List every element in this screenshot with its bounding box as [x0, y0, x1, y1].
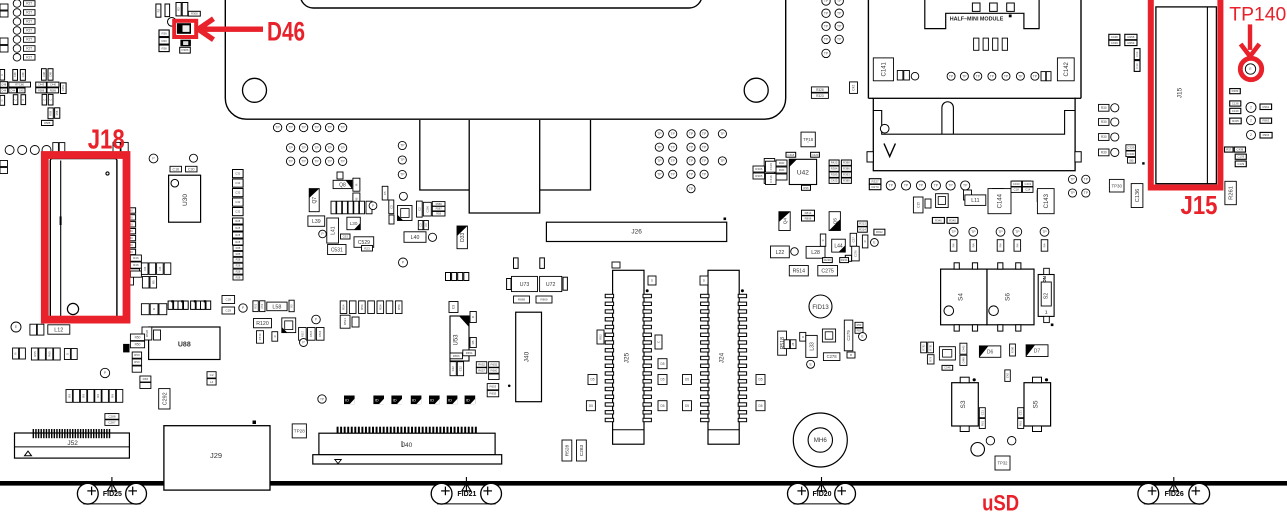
svg-text:C279: C279 [846, 330, 851, 341]
svg-text:TP: TP [340, 146, 345, 150]
svg-text:R389: R389 [843, 179, 850, 183]
svg-text:R270: R270 [872, 185, 880, 189]
svg-text:C286: C286 [425, 205, 429, 212]
svg-text:R28: R28 [235, 226, 240, 230]
svg-text:C32: C32 [459, 366, 463, 372]
svg-text:TP: TP [671, 159, 676, 163]
svg-text:1: 1 [1045, 310, 1048, 316]
svg-text:C: C [21, 99, 25, 101]
svg-text:Q4: Q4 [782, 218, 788, 225]
svg-text:J15: J15 [1181, 190, 1218, 220]
svg-text:R459: R459 [1127, 41, 1134, 45]
svg-text:C425: C425 [831, 179, 838, 183]
svg-text:TP: TP [976, 74, 981, 78]
svg-text:R813: R813 [805, 211, 812, 215]
svg-text:R234: R234 [841, 258, 848, 262]
svg-text:R79: R79 [929, 356, 933, 361]
svg-text:R963: R963 [1262, 119, 1269, 123]
svg-text:L44: L44 [834, 243, 843, 249]
svg-text:R657: R657 [478, 369, 485, 373]
svg-text:R28: R28 [236, 264, 241, 268]
svg-text:J26: J26 [631, 229, 642, 236]
svg-text:R120: R120 [256, 321, 269, 327]
svg-text:C292: C292 [162, 392, 168, 405]
svg-text:TP: TP [702, 159, 707, 163]
svg-text:TP: TP [1033, 74, 1038, 78]
svg-text:TP: TP [1004, 74, 1009, 78]
svg-text:R27: R27 [26, 2, 32, 6]
svg-text:D5: D5 [758, 404, 762, 408]
svg-text:R30: R30 [1101, 120, 1107, 124]
svg-text:Q8: Q8 [339, 182, 346, 188]
svg-text:D46: D46 [267, 17, 305, 47]
svg-text:R50: R50 [135, 343, 141, 347]
svg-text:R345: R345 [949, 218, 956, 222]
svg-text:28: 28 [791, 342, 795, 346]
svg-text:R2: R2 [156, 8, 160, 12]
svg-text:C: C [42, 99, 46, 101]
svg-text:TP: TP [824, 0, 829, 3]
svg-text:R5: R5 [151, 280, 155, 284]
svg-text:R27: R27 [26, 56, 32, 60]
svg-text:TP: TP [689, 159, 694, 163]
svg-text:D5: D5 [660, 404, 664, 408]
svg-text:D6: D6 [987, 349, 994, 355]
svg-text:R50: R50 [134, 360, 140, 364]
svg-text:C531: C531 [331, 247, 343, 253]
svg-text:D5: D5 [660, 362, 664, 366]
svg-text:R4: R4 [158, 266, 162, 270]
svg-text:R46: R46 [133, 256, 139, 260]
svg-text:J24: J24 [719, 352, 726, 363]
svg-text:R28: R28 [236, 270, 241, 274]
svg-text:TP: TP [327, 126, 332, 130]
svg-text:TP: TP [1084, 178, 1089, 182]
svg-text:TP: TP [1015, 230, 1020, 234]
svg-text:TP: TP [837, 11, 842, 15]
svg-text:R28: R28 [236, 258, 241, 262]
svg-text:C453: C453 [61, 85, 65, 92]
svg-text:TP: TP [702, 132, 707, 136]
svg-text:R962: R962 [1262, 105, 1269, 109]
svg-text:R660: R660 [491, 369, 498, 373]
svg-text:ID: ID [466, 397, 470, 402]
svg-text:S2: S2 [1044, 293, 1050, 300]
svg-text:R388: R388 [843, 161, 850, 165]
svg-text:C48: C48 [13, 72, 17, 77]
svg-text:R306: R306 [755, 167, 763, 171]
svg-text:R54: R54 [378, 304, 382, 310]
svg-text:TP: TP [934, 184, 939, 188]
svg-text:TP: TP [689, 173, 694, 177]
svg-text:R27: R27 [26, 29, 32, 33]
svg-text:R65: R65 [48, 351, 52, 357]
svg-text:TP: TP [962, 74, 967, 78]
svg-text:C418: C418 [788, 153, 795, 157]
svg-text:TP: TP [720, 159, 725, 163]
svg-text:TP: TP [824, 24, 829, 28]
svg-text:R: R [863, 240, 867, 242]
svg-text:C32: C32 [235, 210, 241, 214]
svg-text:R655: R655 [491, 363, 498, 367]
svg-text:R30: R30 [1101, 151, 1107, 155]
svg-text:C329: C329 [1127, 146, 1135, 150]
svg-text:L11: L11 [971, 198, 979, 204]
svg-text:R9: R9 [96, 394, 100, 398]
svg-text:TP: TP [720, 132, 725, 136]
svg-text:R4: R4 [971, 243, 975, 247]
svg-text:2: 2 [1250, 133, 1252, 137]
svg-text:FID26: FID26 [1165, 491, 1184, 498]
svg-text:C278: C278 [827, 354, 838, 359]
svg-text:TP: TP [971, 230, 976, 234]
svg-text:TP: TP [657, 159, 662, 163]
svg-text:TP: TP [1084, 191, 1089, 195]
svg-text:R516: R516 [318, 330, 322, 337]
svg-text:R517: R517 [300, 330, 304, 337]
svg-text:TP: TP [824, 38, 829, 42]
svg-text:C430: C430 [1013, 182, 1020, 186]
svg-text:U88: U88 [178, 342, 191, 349]
svg-text:R534: R534 [343, 318, 347, 326]
svg-text:L33: L33 [809, 342, 815, 351]
svg-text:R812: R812 [876, 230, 883, 234]
svg-text:C30: C30 [188, 167, 195, 171]
svg-text:R37: R37 [1226, 148, 1232, 152]
svg-text:TP: TP [837, 0, 842, 3]
svg-text:FID21: FID21 [457, 491, 476, 498]
svg-text:U73: U73 [520, 282, 530, 288]
svg-text:TP30: TP30 [1111, 183, 1122, 188]
svg-text:R389: R389 [1232, 89, 1239, 93]
svg-text:C: C [0, 74, 4, 76]
svg-text:C418: C418 [769, 163, 773, 171]
svg-text:U30: U30 [182, 194, 189, 206]
svg-text:R514: R514 [793, 269, 806, 275]
svg-text:C330: C330 [1127, 152, 1135, 156]
svg-text:TP: TP [837, 24, 842, 28]
svg-text:C5: C5 [389, 205, 393, 209]
svg-text:D5: D5 [589, 404, 593, 408]
svg-text:R305: R305 [755, 174, 763, 178]
svg-text:2: 2 [1250, 118, 1252, 122]
svg-text:TP: TP [400, 173, 405, 177]
svg-text:TP: TP [1070, 178, 1075, 182]
svg-text:R28: R28 [236, 252, 241, 256]
svg-text:R652: R652 [478, 363, 485, 367]
svg-text:L40: L40 [411, 235, 420, 241]
svg-text:R53: R53 [857, 323, 862, 327]
svg-text:R328: R328 [816, 88, 824, 92]
svg-text:TP: TP [400, 158, 405, 162]
svg-text:TP: TP [301, 160, 306, 164]
svg-text:C48: C48 [21, 72, 25, 77]
svg-text:C443: C443 [38, 83, 45, 87]
svg-text:R: R [850, 353, 852, 357]
svg-text:C448: C448 [961, 357, 965, 364]
svg-text:TP: TP [288, 160, 293, 164]
svg-text:R54: R54 [342, 304, 346, 310]
svg-text:TP: TP [702, 145, 707, 149]
svg-text:R4: R4 [1043, 243, 1047, 247]
svg-text:U42: U42 [797, 170, 809, 177]
svg-text:R782: R782 [922, 344, 926, 351]
svg-text:TP18: TP18 [803, 137, 814, 142]
svg-text:TP: TP [320, 397, 324, 401]
svg-text:ID: ID [430, 397, 434, 402]
svg-text:TP: TP [301, 126, 306, 130]
svg-text:C440: C440 [50, 83, 57, 87]
svg-text:uSD: uSD [982, 490, 1019, 515]
svg-text:ON: ON [1042, 276, 1047, 283]
svg-text:R868: R868 [518, 298, 526, 302]
svg-text:R65: R65 [33, 351, 37, 357]
svg-text:R385: R385 [831, 173, 838, 177]
svg-text:C28: C28 [226, 298, 232, 302]
svg-text:RTC80: RTC80 [15, 83, 24, 87]
svg-text:R65: R65 [143, 377, 149, 381]
svg-text:R305: R305 [1232, 119, 1239, 123]
svg-text:TP: TP [301, 146, 306, 150]
svg-text:R30: R30 [779, 168, 785, 172]
svg-text:R58: R58 [436, 212, 441, 216]
svg-text:R30: R30 [161, 39, 167, 43]
svg-text:R586: R586 [436, 202, 443, 206]
svg-text:TP32: TP32 [997, 461, 1008, 466]
svg-text:R3: R3 [177, 7, 181, 11]
svg-text:TP: TP [314, 160, 319, 164]
svg-text:F13: F13 [1135, 51, 1139, 56]
svg-text:L22: L22 [776, 250, 785, 256]
svg-text:C288: C288 [108, 415, 116, 419]
svg-text:R30: R30 [779, 161, 785, 165]
svg-text:FID13: FID13 [812, 305, 829, 311]
svg-text:TP: TP [657, 145, 662, 149]
svg-text:S4: S4 [958, 293, 965, 301]
svg-text:R9: R9 [82, 394, 86, 398]
svg-text:J18: J18 [88, 124, 125, 155]
svg-text:R54: R54 [360, 304, 364, 310]
svg-text:C48: C48 [48, 72, 52, 77]
svg-text:C27: C27 [851, 237, 855, 243]
svg-text:R528: R528 [565, 444, 571, 456]
svg-text:R386: R386 [182, 48, 189, 52]
svg-text:R28: R28 [235, 233, 240, 237]
svg-text:TP: TP [1070, 191, 1075, 195]
svg-text:C138: C138 [1232, 102, 1239, 106]
svg-text:2: 2 [1250, 106, 1252, 110]
svg-text:C438: C438 [1111, 35, 1118, 39]
svg-text:C18: C18 [1014, 188, 1020, 192]
svg-text:R313: R313 [859, 222, 866, 226]
svg-text:C31: C31 [980, 410, 984, 416]
svg-text:R5: R5 [471, 340, 475, 344]
svg-text:J40: J40 [524, 351, 531, 362]
svg-text:C5: C5 [383, 191, 387, 195]
svg-text:ID: ID [448, 397, 452, 402]
svg-text:C44: C44 [10, 88, 15, 92]
svg-text:D5: D5 [590, 378, 594, 382]
svg-text:C510: C510 [258, 333, 262, 340]
svg-text:Q7: Q7 [312, 197, 318, 204]
svg-text:J29: J29 [210, 451, 222, 460]
svg-text:C431: C431 [1024, 182, 1031, 186]
svg-text:C14: C14 [1025, 188, 1031, 192]
svg-text:C142: C142 [1064, 61, 1070, 76]
svg-text:TP: TP [671, 173, 676, 177]
svg-text:L28: L28 [811, 250, 820, 256]
svg-text:R869: R869 [540, 298, 548, 302]
svg-text:R654: R654 [466, 351, 473, 355]
svg-text:TP: TP [327, 146, 332, 150]
svg-text:TP: TP [327, 160, 332, 164]
svg-text:TP28: TP28 [294, 429, 305, 434]
svg-text:C136: C136 [1135, 189, 1141, 202]
svg-text:J15: J15 [1177, 87, 1184, 98]
svg-text:S5: S5 [1032, 400, 1039, 408]
svg-text:R308: R308 [191, 12, 198, 16]
svg-text:TP140: TP140 [1229, 4, 1286, 26]
svg-text:R27: R27 [26, 47, 32, 51]
svg-text:R964: R964 [1263, 133, 1270, 137]
svg-text:R27: R27 [26, 11, 32, 15]
svg-text:R239: R239 [824, 258, 831, 262]
svg-text:F13: F13 [1135, 63, 1139, 68]
svg-text:C63: C63 [343, 235, 349, 239]
svg-text:L30: L30 [350, 221, 358, 226]
svg-text:C: C [49, 99, 53, 101]
svg-text:FID20: FID20 [812, 491, 831, 498]
svg-text:D7: D7 [1034, 349, 1041, 355]
svg-text:R386: R386 [843, 167, 850, 171]
svg-text:TP: TP [1042, 230, 1047, 234]
svg-text:C: C [14, 99, 18, 101]
svg-text:TP: TP [689, 132, 694, 136]
svg-text:R23: R23 [364, 246, 370, 250]
svg-text:C439: C439 [1111, 41, 1118, 45]
svg-text:S6: S6 [1005, 293, 1012, 301]
svg-text:TP: TP [990, 74, 995, 78]
svg-text:R4: R4 [143, 266, 147, 270]
svg-text:TP: TP [314, 146, 319, 150]
svg-text:C32: C32 [235, 181, 241, 185]
svg-text:R588: R588 [38, 88, 45, 92]
svg-text:D5: D5 [685, 404, 689, 408]
svg-text:R53: R53 [857, 329, 862, 333]
svg-text:TP: TP [951, 230, 956, 234]
svg-text:D5: D5 [660, 378, 664, 382]
svg-text:C139: C139 [1237, 155, 1244, 159]
svg-text:TP: TP [837, 38, 842, 42]
svg-text:R4: R4 [999, 243, 1003, 247]
svg-text:TP: TP [400, 144, 405, 148]
svg-text:R781: R781 [929, 344, 933, 351]
svg-text:BB: BB [1129, 158, 1133, 162]
svg-text:D5: D5 [685, 378, 689, 382]
svg-text:R786: R786 [1010, 346, 1014, 353]
svg-text:TP: TP [288, 126, 293, 130]
svg-text:TP: TP [657, 132, 662, 136]
svg-text:TP: TP [998, 230, 1003, 234]
svg-text:C44: C44 [1, 89, 6, 93]
svg-text:R28: R28 [236, 246, 241, 250]
svg-text:R538: R538 [145, 330, 149, 338]
svg-text:U53: U53 [454, 334, 460, 346]
svg-text:TP: TP [314, 126, 319, 130]
svg-text:R587: R587 [436, 207, 443, 211]
svg-text:C287: C287 [108, 421, 116, 425]
svg-text:TP: TP [963, 184, 968, 188]
svg-text:TP: TP [671, 132, 676, 136]
svg-text:C144: C144 [998, 193, 1004, 208]
svg-text:R: R [273, 335, 277, 337]
svg-text:R30: R30 [1101, 106, 1107, 110]
svg-text:R27: R27 [26, 38, 32, 42]
svg-text:TP: TP [340, 160, 345, 164]
svg-text:TP: TP [824, 52, 829, 56]
svg-text:R9: R9 [67, 394, 71, 398]
svg-text:J40: J40 [402, 442, 413, 449]
svg-text:ID: ID [375, 397, 379, 402]
svg-text:J25: J25 [623, 352, 630, 363]
svg-text:C276: C276 [854, 250, 858, 257]
svg-text:C143: C143 [1044, 193, 1050, 208]
svg-text:TP: TP [288, 146, 293, 150]
svg-text:L58: L58 [272, 304, 281, 310]
svg-text:R384: R384 [831, 167, 838, 171]
svg-text:R27: R27 [26, 20, 32, 24]
svg-text:C45: C45 [19, 88, 24, 92]
svg-text:R327: R327 [872, 179, 880, 183]
svg-text:C445: C445 [961, 345, 965, 352]
svg-text:C529: C529 [358, 240, 370, 246]
svg-text:R46: R46 [133, 263, 139, 267]
svg-text:C32: C32 [451, 366, 455, 372]
svg-text:R: R [801, 336, 805, 338]
svg-text:R5: R5 [290, 304, 294, 308]
svg-text:ID: ID [345, 397, 349, 402]
svg-text:C416: C416 [769, 175, 773, 183]
svg-text:R52: R52 [599, 334, 603, 340]
svg-text:R393: R393 [843, 173, 850, 177]
svg-text:J52: J52 [67, 440, 78, 447]
svg-text:R9: R9 [111, 394, 115, 398]
svg-text:MH6: MH6 [814, 437, 828, 444]
svg-text:HALF–MINI MODULE: HALF–MINI MODULE [950, 17, 1004, 23]
svg-text:L41: L41 [331, 226, 337, 235]
svg-text:C2: C2 [417, 207, 421, 211]
svg-text:C48: C48 [42, 72, 46, 77]
svg-text:R36: R36 [161, 31, 167, 35]
svg-text:R4: R4 [952, 243, 956, 247]
svg-text:C3: C3 [452, 305, 456, 309]
svg-text:TP: TP [657, 173, 662, 177]
svg-text:C275: C275 [821, 269, 834, 275]
svg-text:C139: C139 [1232, 109, 1239, 113]
svg-text:C15: C15 [916, 202, 920, 208]
svg-text:U72: U72 [546, 282, 556, 288]
svg-text:C42: C42 [1006, 373, 1010, 379]
svg-text:TP: TP [275, 126, 280, 130]
svg-text:ID: ID [393, 397, 397, 402]
svg-text:TP: TP [948, 184, 953, 188]
svg-text:L4: L4 [210, 380, 214, 384]
svg-text:R61: R61 [980, 420, 984, 426]
svg-text:R61: R61 [1019, 420, 1023, 426]
svg-text:C32: C32 [235, 172, 241, 176]
svg-text:R515: R515 [309, 330, 313, 337]
svg-text:R4: R4 [1015, 243, 1019, 247]
